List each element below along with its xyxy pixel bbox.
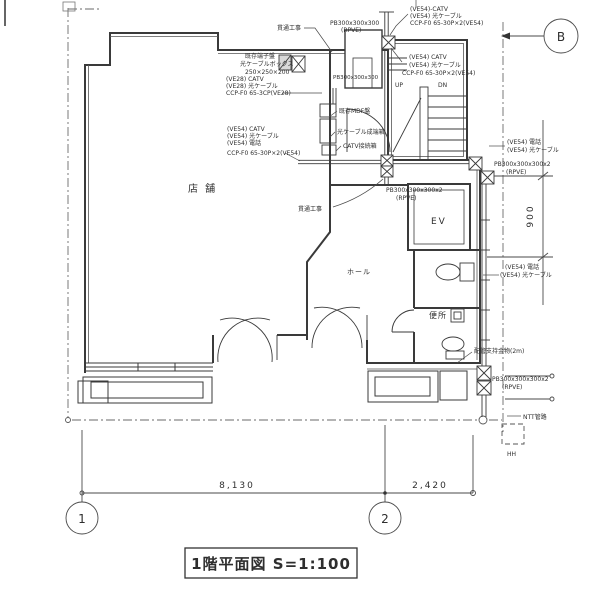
ann-stair-ccp: CCP-F0 65-30P×2(VE54): [402, 70, 475, 77]
ann-pb-top-type: (RPVE): [341, 27, 361, 34]
ann-topright-ccp: CCP-F0 65-30P×2(VE54): [410, 20, 483, 27]
planter-right: [368, 371, 467, 402]
grid-bubble-b: B: [557, 30, 565, 44]
ann-right-lower-fiber: (VE54) 光ケーブル: [500, 271, 552, 279]
pull-box: [381, 155, 393, 166]
stair-down-label: DN: [438, 82, 447, 89]
ntt-riser-node: [479, 416, 487, 424]
scan-artifact: [4, 0, 6, 26]
ann-ve28-ccp: CCP-F0 65-3CP(VE28): [226, 90, 291, 97]
grid-b-arrow: [501, 33, 510, 40]
ann-pb-right: PB300x300x300x2: [494, 161, 551, 168]
ann-left-ccp: CCP-F0 65-30P×2(VE54): [227, 150, 300, 157]
ann-penetration-mid: 貫通工事: [298, 205, 322, 213]
grid-bubble-2: 2: [381, 512, 389, 526]
room-label-elevator: EV: [431, 217, 447, 227]
annotations: PB300x300x300 (RPVE) (VE54)-CATV (VE54) …: [226, 6, 559, 421]
grid-bubble-1: 1: [78, 512, 86, 526]
title-block: 1階平面図 S=1:100: [185, 548, 357, 578]
pull-box: [469, 157, 482, 170]
ann-catv-junction: CATV接続箱: [343, 142, 377, 150]
ann-topright-fiber: (VE54) 光ケーブル: [410, 12, 462, 20]
ann-ntt-conduit: NTT管路: [523, 413, 547, 421]
dim-2420: 2,420: [412, 481, 448, 491]
dim-8130: 8,130: [219, 481, 255, 491]
storefront-window: [85, 363, 213, 371]
ann-pb-mid: PB300x300x300x2: [386, 187, 443, 194]
ann-stair-fiber: (VE54) 光ケーブル: [409, 61, 461, 69]
ann-pb-bottom: PB300x300x300x2: [492, 376, 549, 383]
scanned-floor-plan-page: UP DN EV: [0, 0, 600, 594]
ann-pb-top: PB300x300x300: [330, 20, 379, 27]
ann-pb-mid-type: (RPVE): [396, 195, 416, 202]
ann-shaft-pb: PB300x300x300: [333, 75, 379, 81]
stair-up-label: UP: [395, 82, 403, 89]
ann-pipe-support: 配管支持金物(2m): [474, 347, 524, 355]
ann-ve28-fiber: (VE28) 光ケーブル: [226, 82, 278, 90]
pull-box: [477, 366, 491, 380]
ann-terminal-board: 既存端子盤: [245, 52, 275, 60]
ann-left-fiber: (VE54) 光ケーブル: [227, 132, 279, 140]
exterior-walls: [85, 33, 480, 373]
ann-right-lower-tel: (VE54) 電話: [505, 263, 539, 271]
room-label-toilet: 便所: [429, 310, 447, 320]
room-label-store: 店 舗: [188, 182, 217, 195]
room-label-hall: ホール: [347, 268, 371, 276]
ann-pb-bottom-type: (RPVE): [502, 384, 522, 391]
ann-ve28-catv: (VE28) CATV: [226, 76, 265, 83]
pull-box: [382, 36, 395, 49]
ann-penetration-top: 貫通工事: [277, 24, 301, 32]
pull-box: [477, 381, 491, 395]
pull-box: [481, 171, 494, 184]
pull-box: [381, 166, 393, 177]
ann-right-upper-tel: (VE54) 電話: [507, 138, 541, 146]
handhole-box: [502, 424, 524, 444]
ann-left-tel: (VE54) 電話: [227, 139, 261, 147]
ann-pb-right-type: (RPVE): [506, 169, 526, 176]
ann-topright-catv: (VE54)-CATV: [410, 6, 449, 13]
handhole-label: HH: [507, 451, 516, 458]
ann-fiber-termination: 光ケーブル成端箱: [337, 128, 385, 136]
ann-fiber-box: 光ケーブルボックス: [240, 60, 293, 68]
dim-node: [383, 491, 387, 495]
exterior-wall-inner-lines: [89, 37, 481, 370]
drawing-title: 1階平面図 S=1:100: [191, 555, 351, 573]
ann-fiber-box-size: 250×250×200: [245, 69, 290, 76]
mdf-boxes: [320, 104, 336, 155]
ann-stair-catv: (VE54) CATV: [409, 54, 448, 61]
corner-mark: [63, 2, 75, 11]
dim-900: 900: [526, 204, 536, 227]
ann-right-upper-fiber: (VE54) 光ケーブル: [507, 146, 559, 154]
floor-plan-svg: UP DN EV: [0, 0, 600, 594]
ann-left-catv: (VE54) CATV: [227, 126, 266, 133]
planter-left: [78, 377, 212, 403]
ann-mdf: 既存MDF盤: [339, 107, 370, 115]
boundary-node-left: [66, 418, 71, 423]
